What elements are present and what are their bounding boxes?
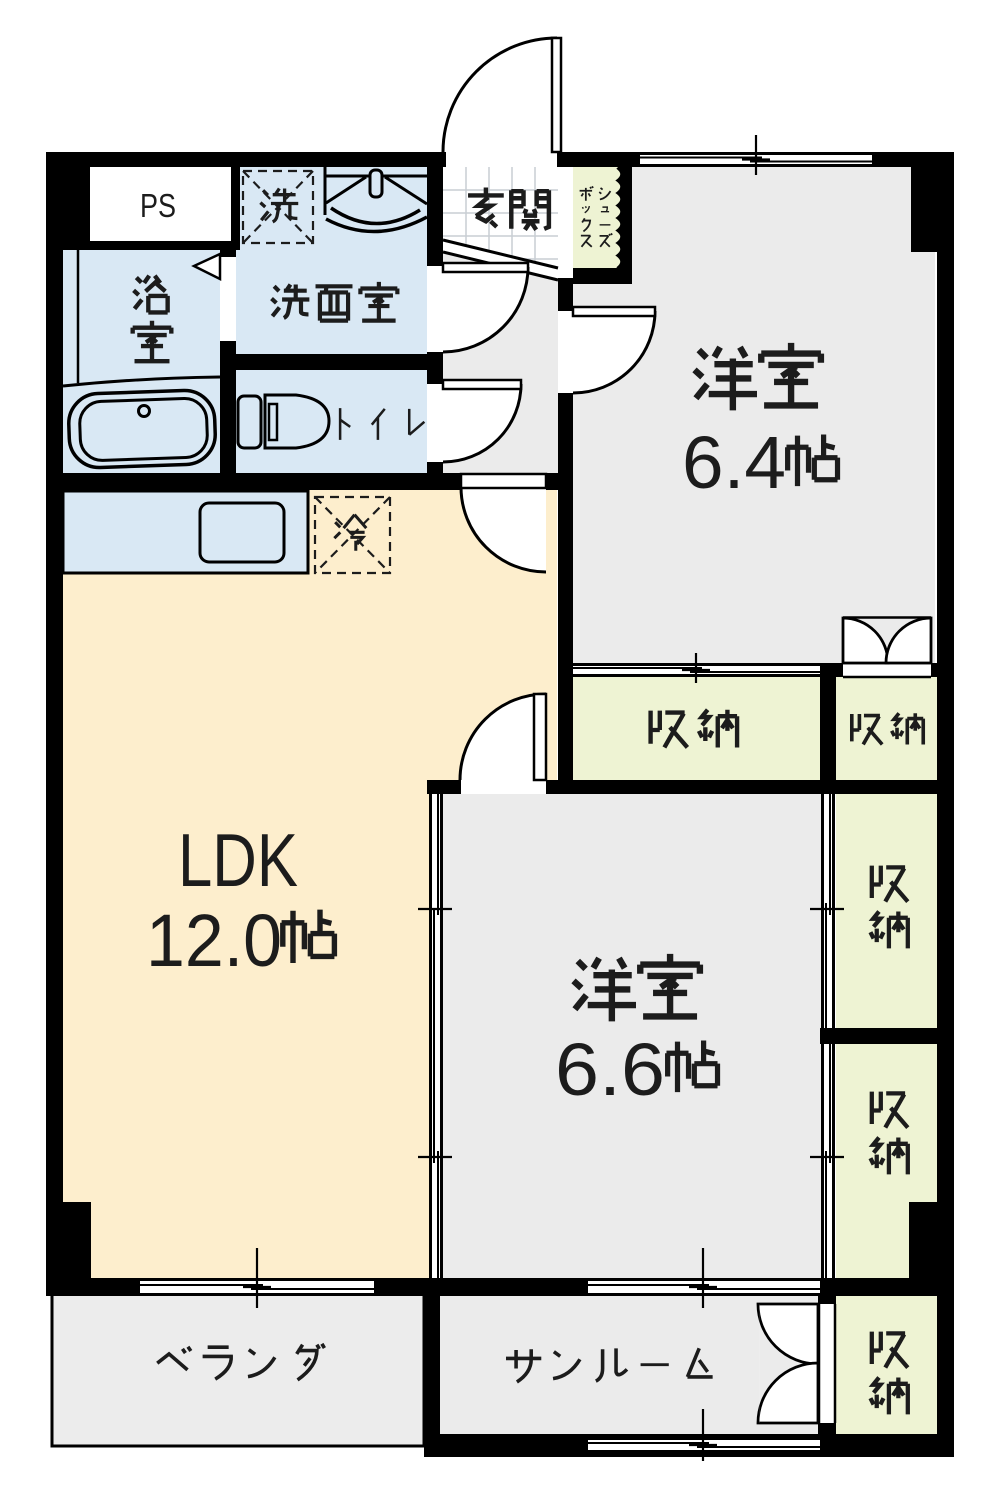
svg-text:PS: PS <box>140 187 176 224</box>
svg-text:6.4: 6.4 <box>682 421 786 504</box>
svg-text:6.6: 6.6 <box>555 1028 665 1111</box>
svg-text:12.0: 12.0 <box>146 899 282 982</box>
svg-text:LDK: LDK <box>178 818 298 902</box>
